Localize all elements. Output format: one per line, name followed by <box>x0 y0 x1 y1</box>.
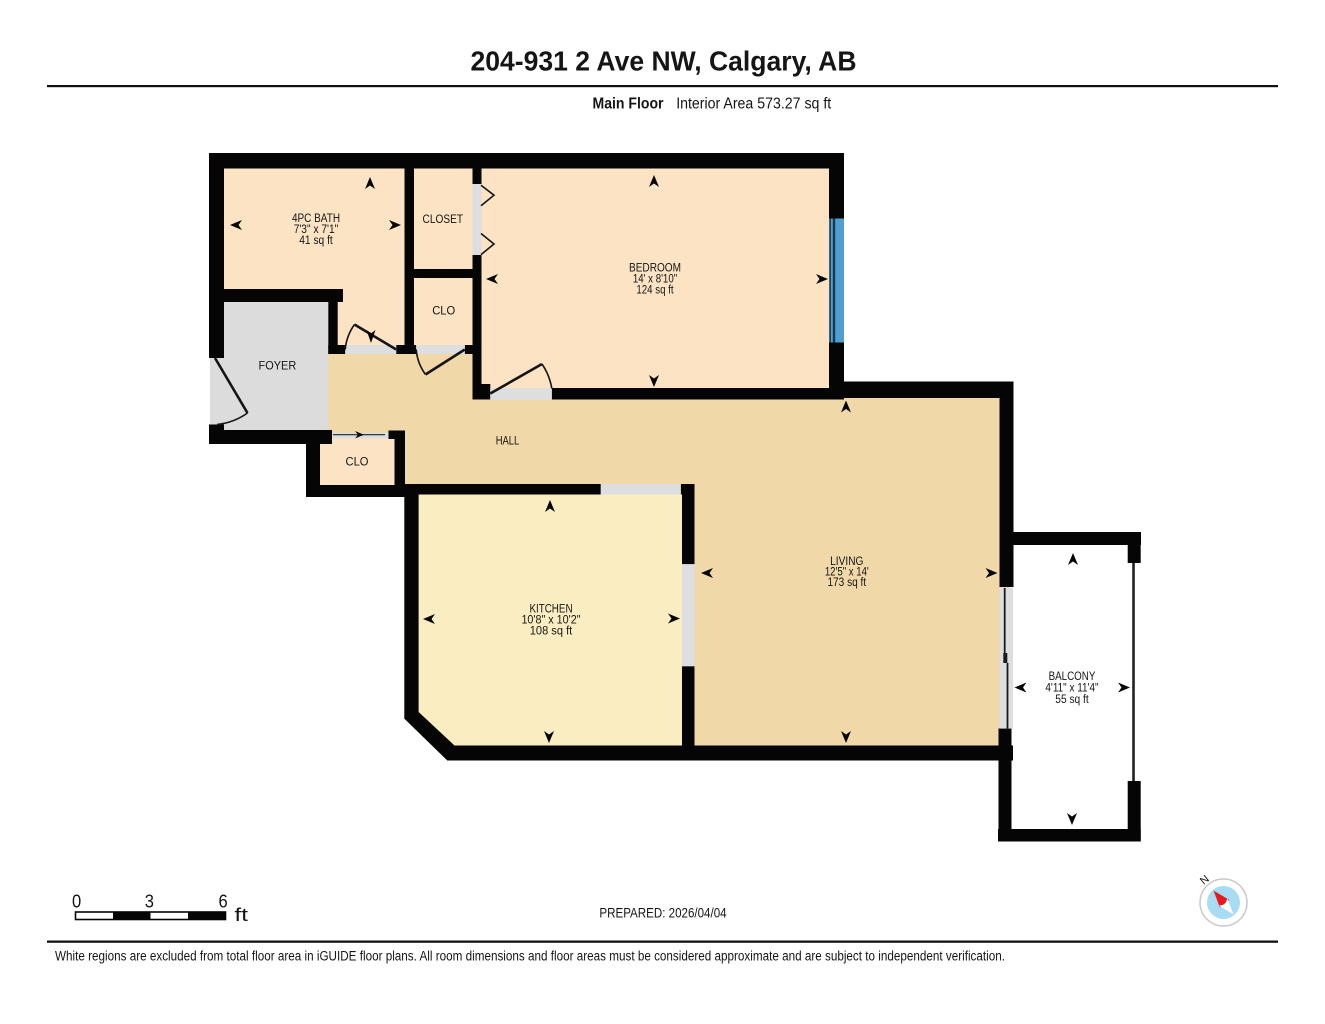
svg-text:4'11" x 11'4": 4'11" x 11'4" <box>1045 683 1098 695</box>
svg-text:124 sq ft: 124 sq ft <box>636 285 674 297</box>
svg-text:FOYER: FOYER <box>259 361 297 373</box>
svg-text:108 sq ft: 108 sq ft <box>530 625 573 637</box>
svg-text:CLOSET: CLOSET <box>423 214 464 226</box>
svg-text:ft: ft <box>235 904 249 925</box>
svg-text:Interior Area 573.27 sq ft: Interior Area 573.27 sq ft <box>676 95 832 112</box>
svg-text:CLO: CLO <box>346 457 369 469</box>
svg-text:Main Floor: Main Floor <box>593 95 664 112</box>
svg-text:BEDROOM: BEDROOM <box>629 262 681 274</box>
svg-text:0: 0 <box>72 891 81 912</box>
svg-text:White regions are excluded fro: White regions are excluded from total fl… <box>55 949 1005 964</box>
svg-text:173 sq ft: 173 sq ft <box>827 577 866 589</box>
svg-text:6: 6 <box>219 891 228 912</box>
svg-text:41 sq ft: 41 sq ft <box>299 235 333 247</box>
svg-text:HALL: HALL <box>496 436 520 448</box>
svg-text:BALCONY: BALCONY <box>1049 671 1096 683</box>
svg-text:CLO: CLO <box>432 306 455 318</box>
svg-text:3: 3 <box>145 891 154 912</box>
svg-text:55 sq ft: 55 sq ft <box>1055 694 1089 706</box>
svg-text:204-931 2 Ave NW, Calgary, AB: 204-931 2 Ave NW, Calgary, AB <box>471 46 857 77</box>
svg-text:PREPARED: 2026/04/04: PREPARED: 2026/04/04 <box>599 906 727 921</box>
